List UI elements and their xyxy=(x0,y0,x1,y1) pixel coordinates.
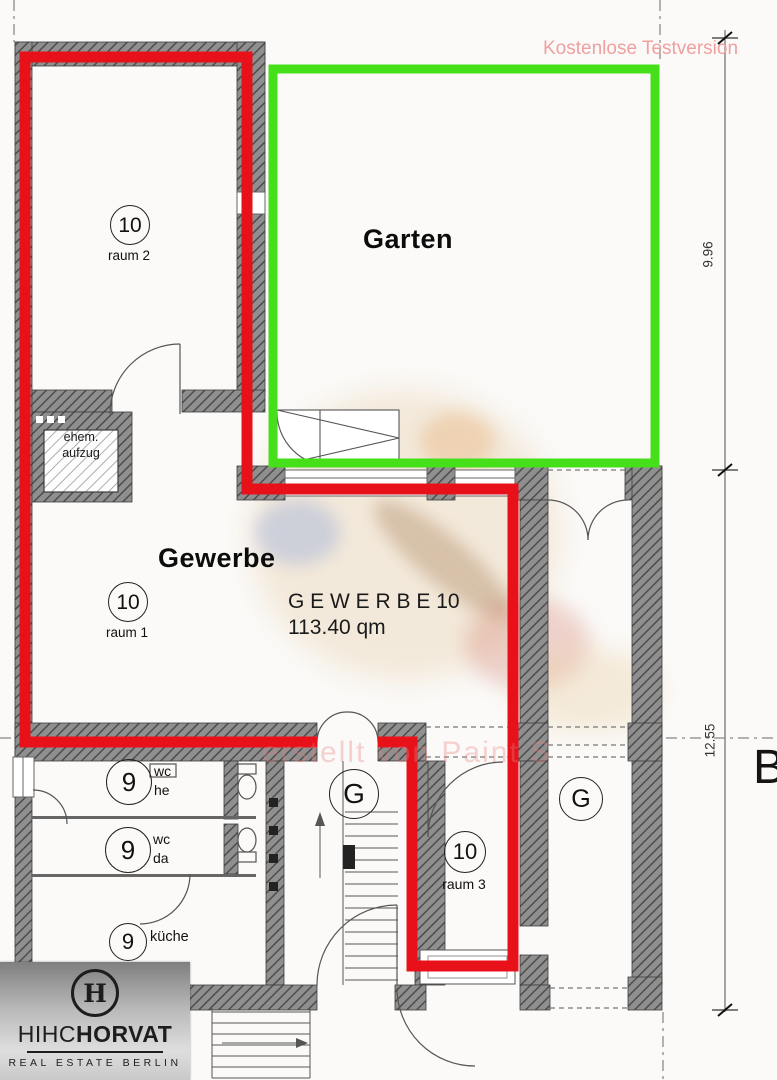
dimension-line xyxy=(712,30,738,1016)
wc-he-line1: wc xyxy=(154,762,171,781)
gewerbe-title: Gewerbe xyxy=(158,543,276,574)
section-letter: B xyxy=(753,740,777,795)
logo-divider xyxy=(27,1051,163,1053)
logo-brand-bold: HORVAT xyxy=(76,1021,172,1047)
logo-brand-name: HIHCHORVAT xyxy=(18,1021,173,1048)
badge-kueche: 9 xyxy=(109,923,147,961)
badge-raum3: 10 xyxy=(444,831,486,873)
badge-g-room: G xyxy=(559,777,603,821)
badge-wc-da: 9 xyxy=(105,827,151,873)
badge-raum1: 10 xyxy=(108,582,148,622)
badge-wc-he: 9 xyxy=(106,759,152,805)
trial-watermark: Kostenlose Testversion xyxy=(543,38,738,60)
logo-monogram: H xyxy=(83,979,107,1008)
garden-outline xyxy=(273,69,655,463)
badge-g-stair: G xyxy=(329,769,379,819)
wc-da-line2: da xyxy=(153,849,170,868)
badge-raum2: 10 xyxy=(110,205,150,245)
dimension-upper: 9.96 xyxy=(701,241,716,267)
exterior-stair xyxy=(212,1008,310,1078)
garden-terrace xyxy=(277,410,399,466)
badge-raum2-label: raum 2 xyxy=(91,248,167,263)
elevator-label-line1: ehem. xyxy=(44,430,118,446)
badge-wc-he-label: wc he xyxy=(154,762,171,800)
gewerbe-unit-area: 113.40 qm xyxy=(288,616,386,640)
logo-monogram-icon: H xyxy=(71,969,119,1017)
broker-logo: H HIHCHORVAT REAL ESTATE BERLIN xyxy=(0,962,190,1080)
badge-kueche-label: küche xyxy=(150,929,210,945)
floor-plan-drawing xyxy=(0,0,777,1080)
garten-title: Garten xyxy=(363,224,453,255)
badge-raum3-label: raum 3 xyxy=(426,876,502,892)
floorplan-page: Kostenlose Testversion erstellt von Pain… xyxy=(0,0,777,1080)
elevator-label-line2: aufzug xyxy=(44,446,118,462)
badge-wc-da-label: wc da xyxy=(153,830,170,868)
gewerbe-unit-name: G E W E R B E 10 xyxy=(288,590,460,614)
logo-tagline: REAL ESTATE BERLIN xyxy=(8,1057,181,1069)
badge-raum1-label: raum 1 xyxy=(89,625,165,640)
wc-he-line2: he xyxy=(154,781,171,800)
elevator-label: ehem. aufzug xyxy=(44,430,118,461)
logo-brand-light: HIHC xyxy=(18,1021,76,1047)
dimension-lower: 12.55 xyxy=(702,724,717,758)
wc-da-line1: wc xyxy=(153,830,170,849)
creator-watermark: erstellt von Paint S xyxy=(262,736,552,770)
